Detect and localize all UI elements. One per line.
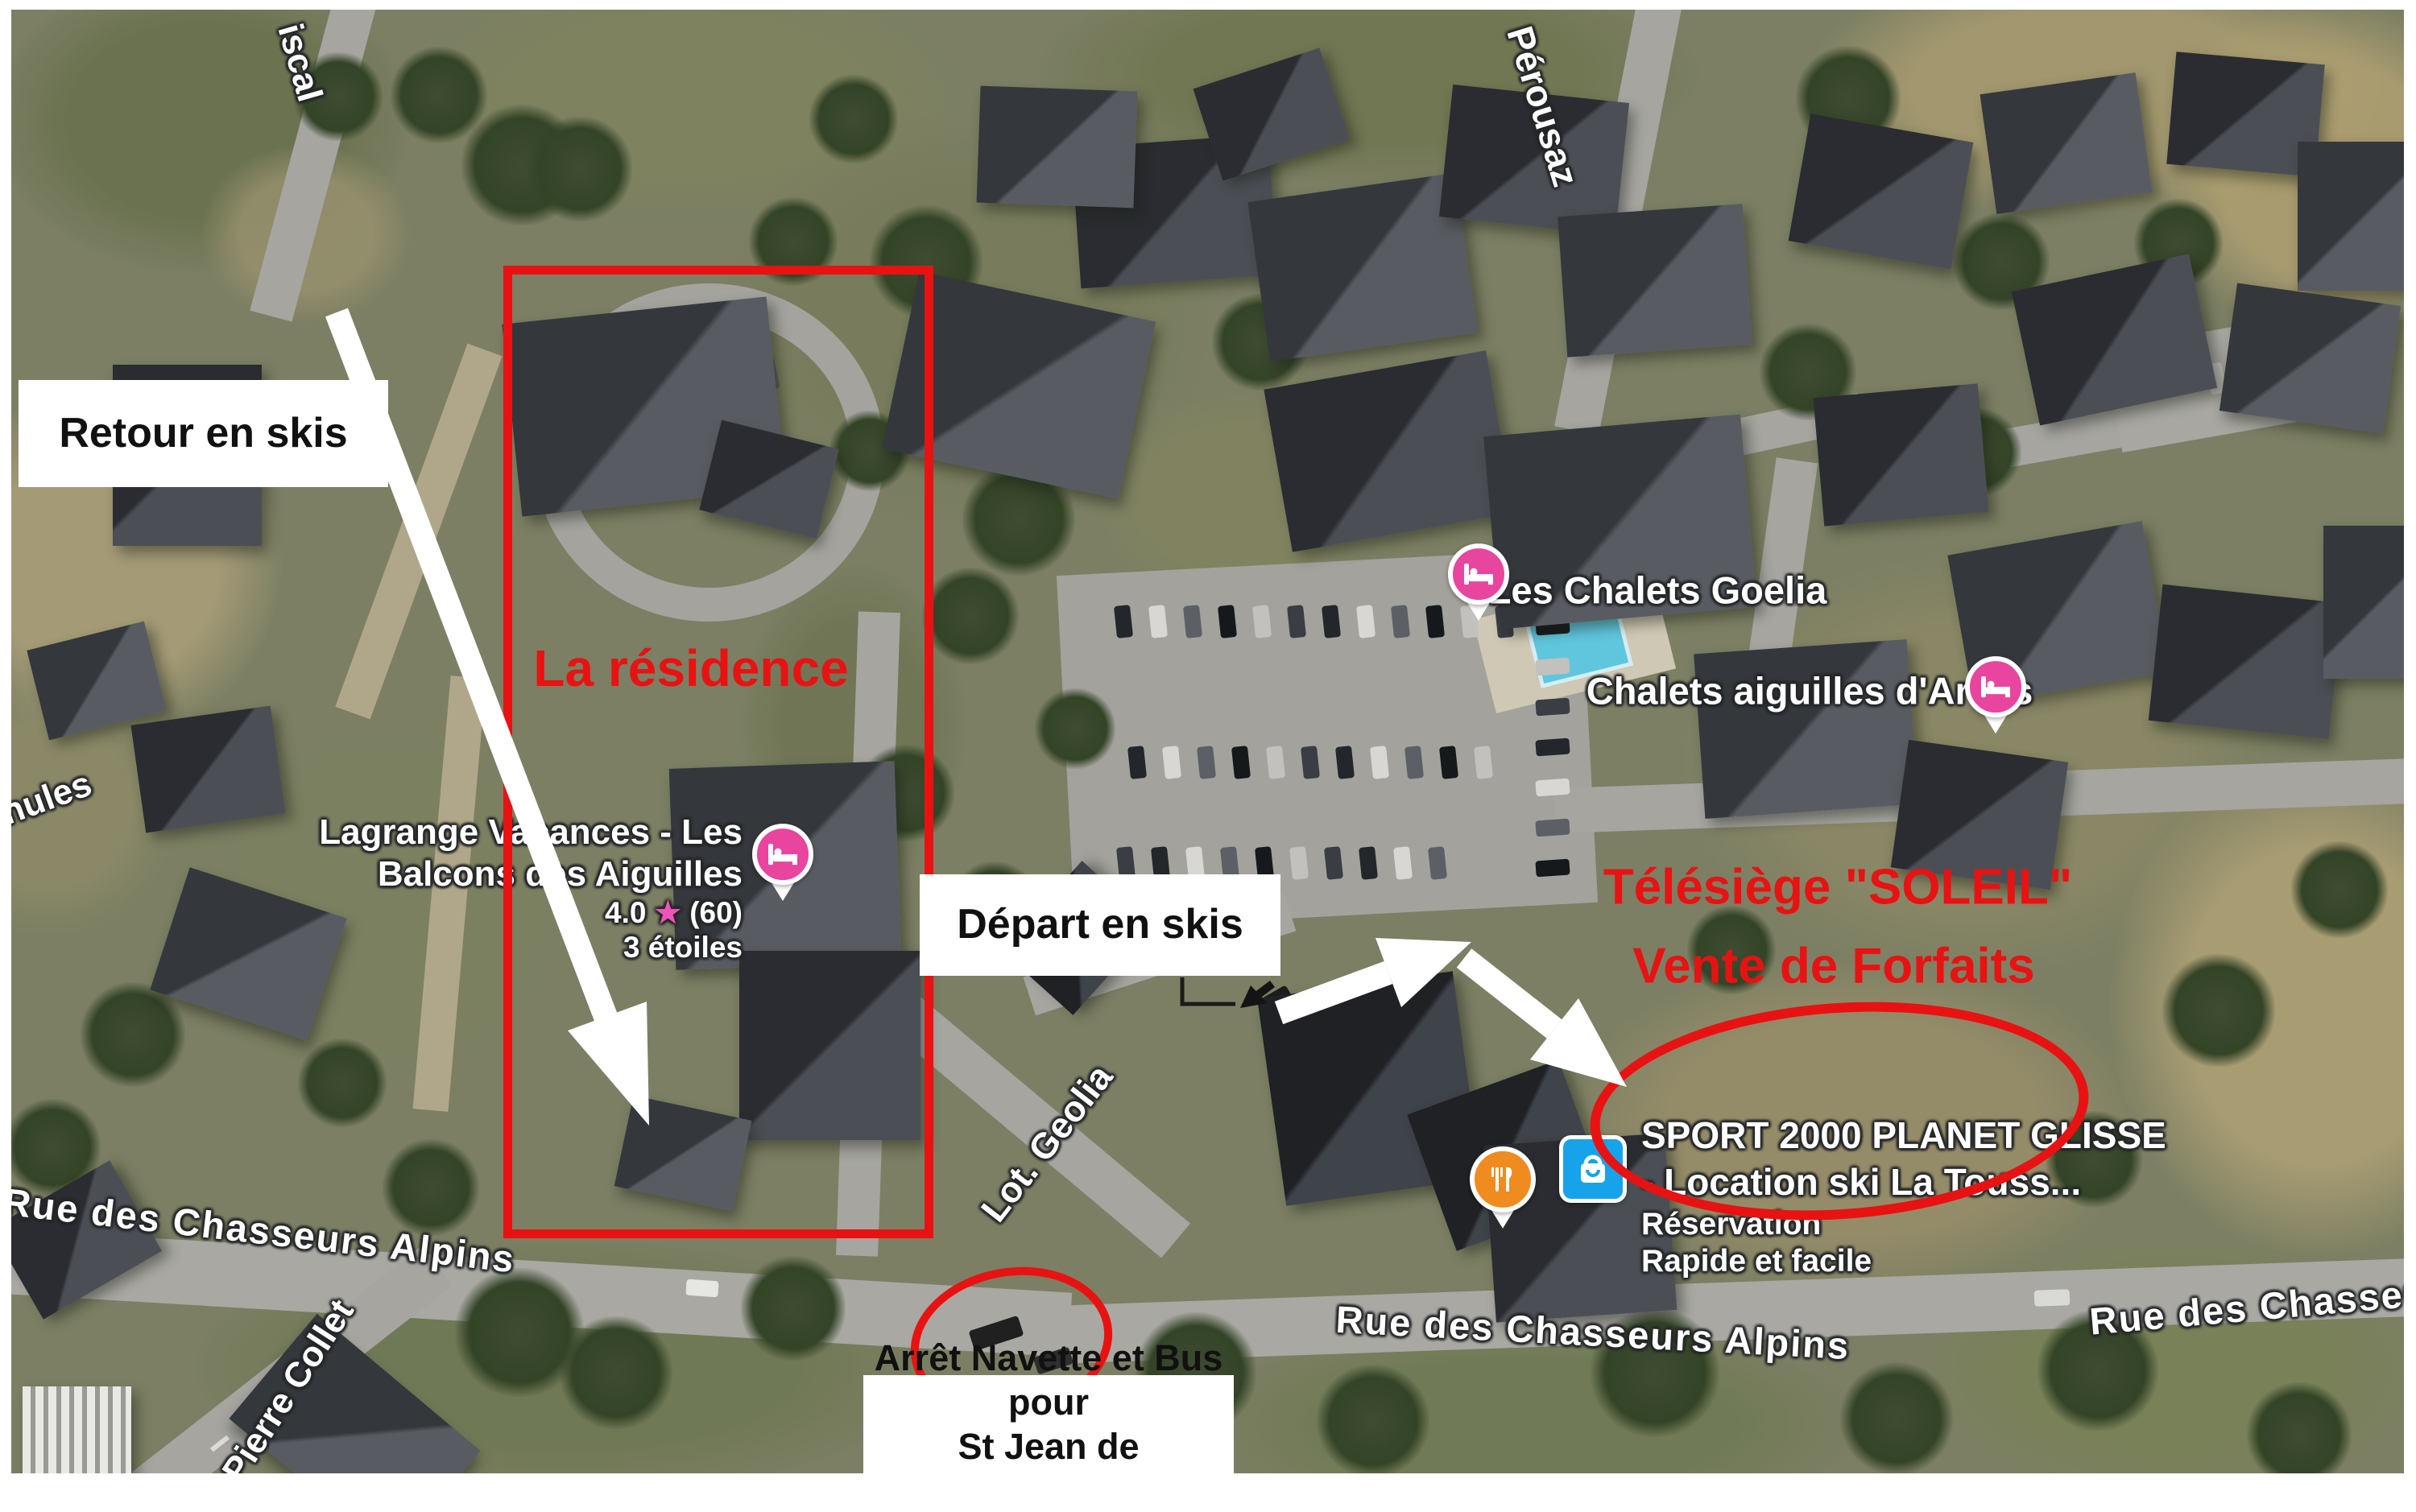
map-texture — [1474, 746, 1493, 779]
map-texture — [1405, 746, 1424, 779]
map-texture — [1370, 746, 1389, 779]
map-texture — [809, 75, 898, 163]
bus-stop-label: Arrêt Navette et Bus pour St Jean de Mau… — [863, 1375, 1234, 1475]
map-texture — [2148, 585, 2343, 740]
map-texture — [1535, 859, 1570, 878]
map-texture — [1535, 698, 1570, 717]
map-texture — [1162, 746, 1181, 779]
map-texture — [1788, 114, 1973, 269]
map-texture — [383, 1139, 479, 1236]
hotel-pin-arves[interactable] — [1965, 656, 2026, 717]
map-texture — [298, 1039, 387, 1127]
depart-en-skis-label: Départ en skis — [920, 874, 1280, 976]
map-texture — [130, 705, 285, 832]
frame-top — [0, 0, 2416, 10]
map-texture — [1980, 72, 2152, 214]
frame-left — [0, 0, 11, 1512]
hotel-bed-icon — [1980, 675, 2011, 699]
hotel-pin-goelia[interactable] — [1448, 543, 1509, 605]
frame-bottom — [0, 1473, 2416, 1512]
map-texture — [1694, 639, 1918, 819]
map-texture — [2162, 954, 2275, 1067]
map-texture — [1148, 605, 1168, 638]
map-texture — [1335, 746, 1355, 779]
map-texture — [922, 568, 1019, 664]
map-texture — [1252, 605, 1272, 638]
map-texture — [1359, 846, 1378, 880]
telesiege-annotation-line1: Télésiège "SOLEIL" — [1603, 859, 2073, 916]
map-texture — [1425, 605, 1445, 638]
map-texture — [1287, 605, 1306, 638]
map-texture — [2323, 526, 2416, 679]
map-texture — [2034, 1289, 2071, 1307]
map-texture — [2291, 841, 2388, 938]
map-texture — [1183, 605, 1202, 638]
map-texture — [1301, 746, 1320, 779]
map-texture — [1231, 746, 1251, 779]
map-texture — [23, 1386, 131, 1477]
map-texture — [1289, 846, 1309, 880]
map-texture — [1535, 779, 1570, 797]
map-texture — [1391, 605, 1410, 638]
map-texture — [1127, 746, 1147, 779]
map-texture — [1813, 383, 1988, 526]
map-texture — [2298, 142, 2416, 291]
map-texture — [1535, 819, 1570, 837]
map-texture — [1322, 605, 1341, 638]
map-texture — [1840, 1362, 1953, 1475]
restaurant-fork-knife-icon — [1488, 1165, 1517, 1194]
map-texture — [1266, 746, 1285, 779]
map-texture — [1558, 204, 1752, 357]
retour-en-skis-label: Retour en skis — [19, 380, 388, 487]
map-texture — [1356, 605, 1376, 638]
map-texture — [976, 85, 1137, 208]
map-texture — [1197, 746, 1216, 779]
hotel-bed-icon — [1463, 562, 1494, 586]
map-texture — [2219, 283, 2400, 434]
map-texture — [1114, 605, 1133, 638]
restaurant-pin[interactable] — [1470, 1146, 1536, 1212]
residence-highlight-rectangle — [503, 266, 933, 1238]
map-texture — [1218, 605, 1237, 638]
map-texture — [685, 1279, 718, 1298]
map-texture — [1439, 746, 1458, 779]
map-texture — [527, 117, 632, 221]
map-texture — [1317, 1365, 1429, 1477]
decor-layer — [0, 0, 2416, 1512]
frame-right — [2404, 0, 2416, 1512]
map-texture — [1393, 846, 1413, 880]
map-texture — [741, 1256, 846, 1361]
map-texture — [1428, 846, 1447, 880]
satellite-map[interactable]: iscal Pérousaz nules Lot. Geolia Rue des… — [0, 0, 2416, 1512]
map-texture — [81, 982, 185, 1087]
poi-sport-line4: Rapide et facile — [1641, 1243, 2166, 1280]
poi-label-goelia[interactable]: Les Chalets Goelia — [1488, 568, 1827, 613]
map-texture — [2247, 1382, 2352, 1487]
telesiege-annotation-line2: Vente de Forfaits — [1632, 938, 2035, 995]
map-texture — [1535, 658, 1570, 676]
map-texture — [560, 1316, 672, 1429]
residence-annotation-text: La résidence — [533, 638, 848, 698]
map-texture — [1035, 688, 1115, 769]
map-texture — [1535, 738, 1570, 757]
map-texture — [1324, 846, 1343, 880]
